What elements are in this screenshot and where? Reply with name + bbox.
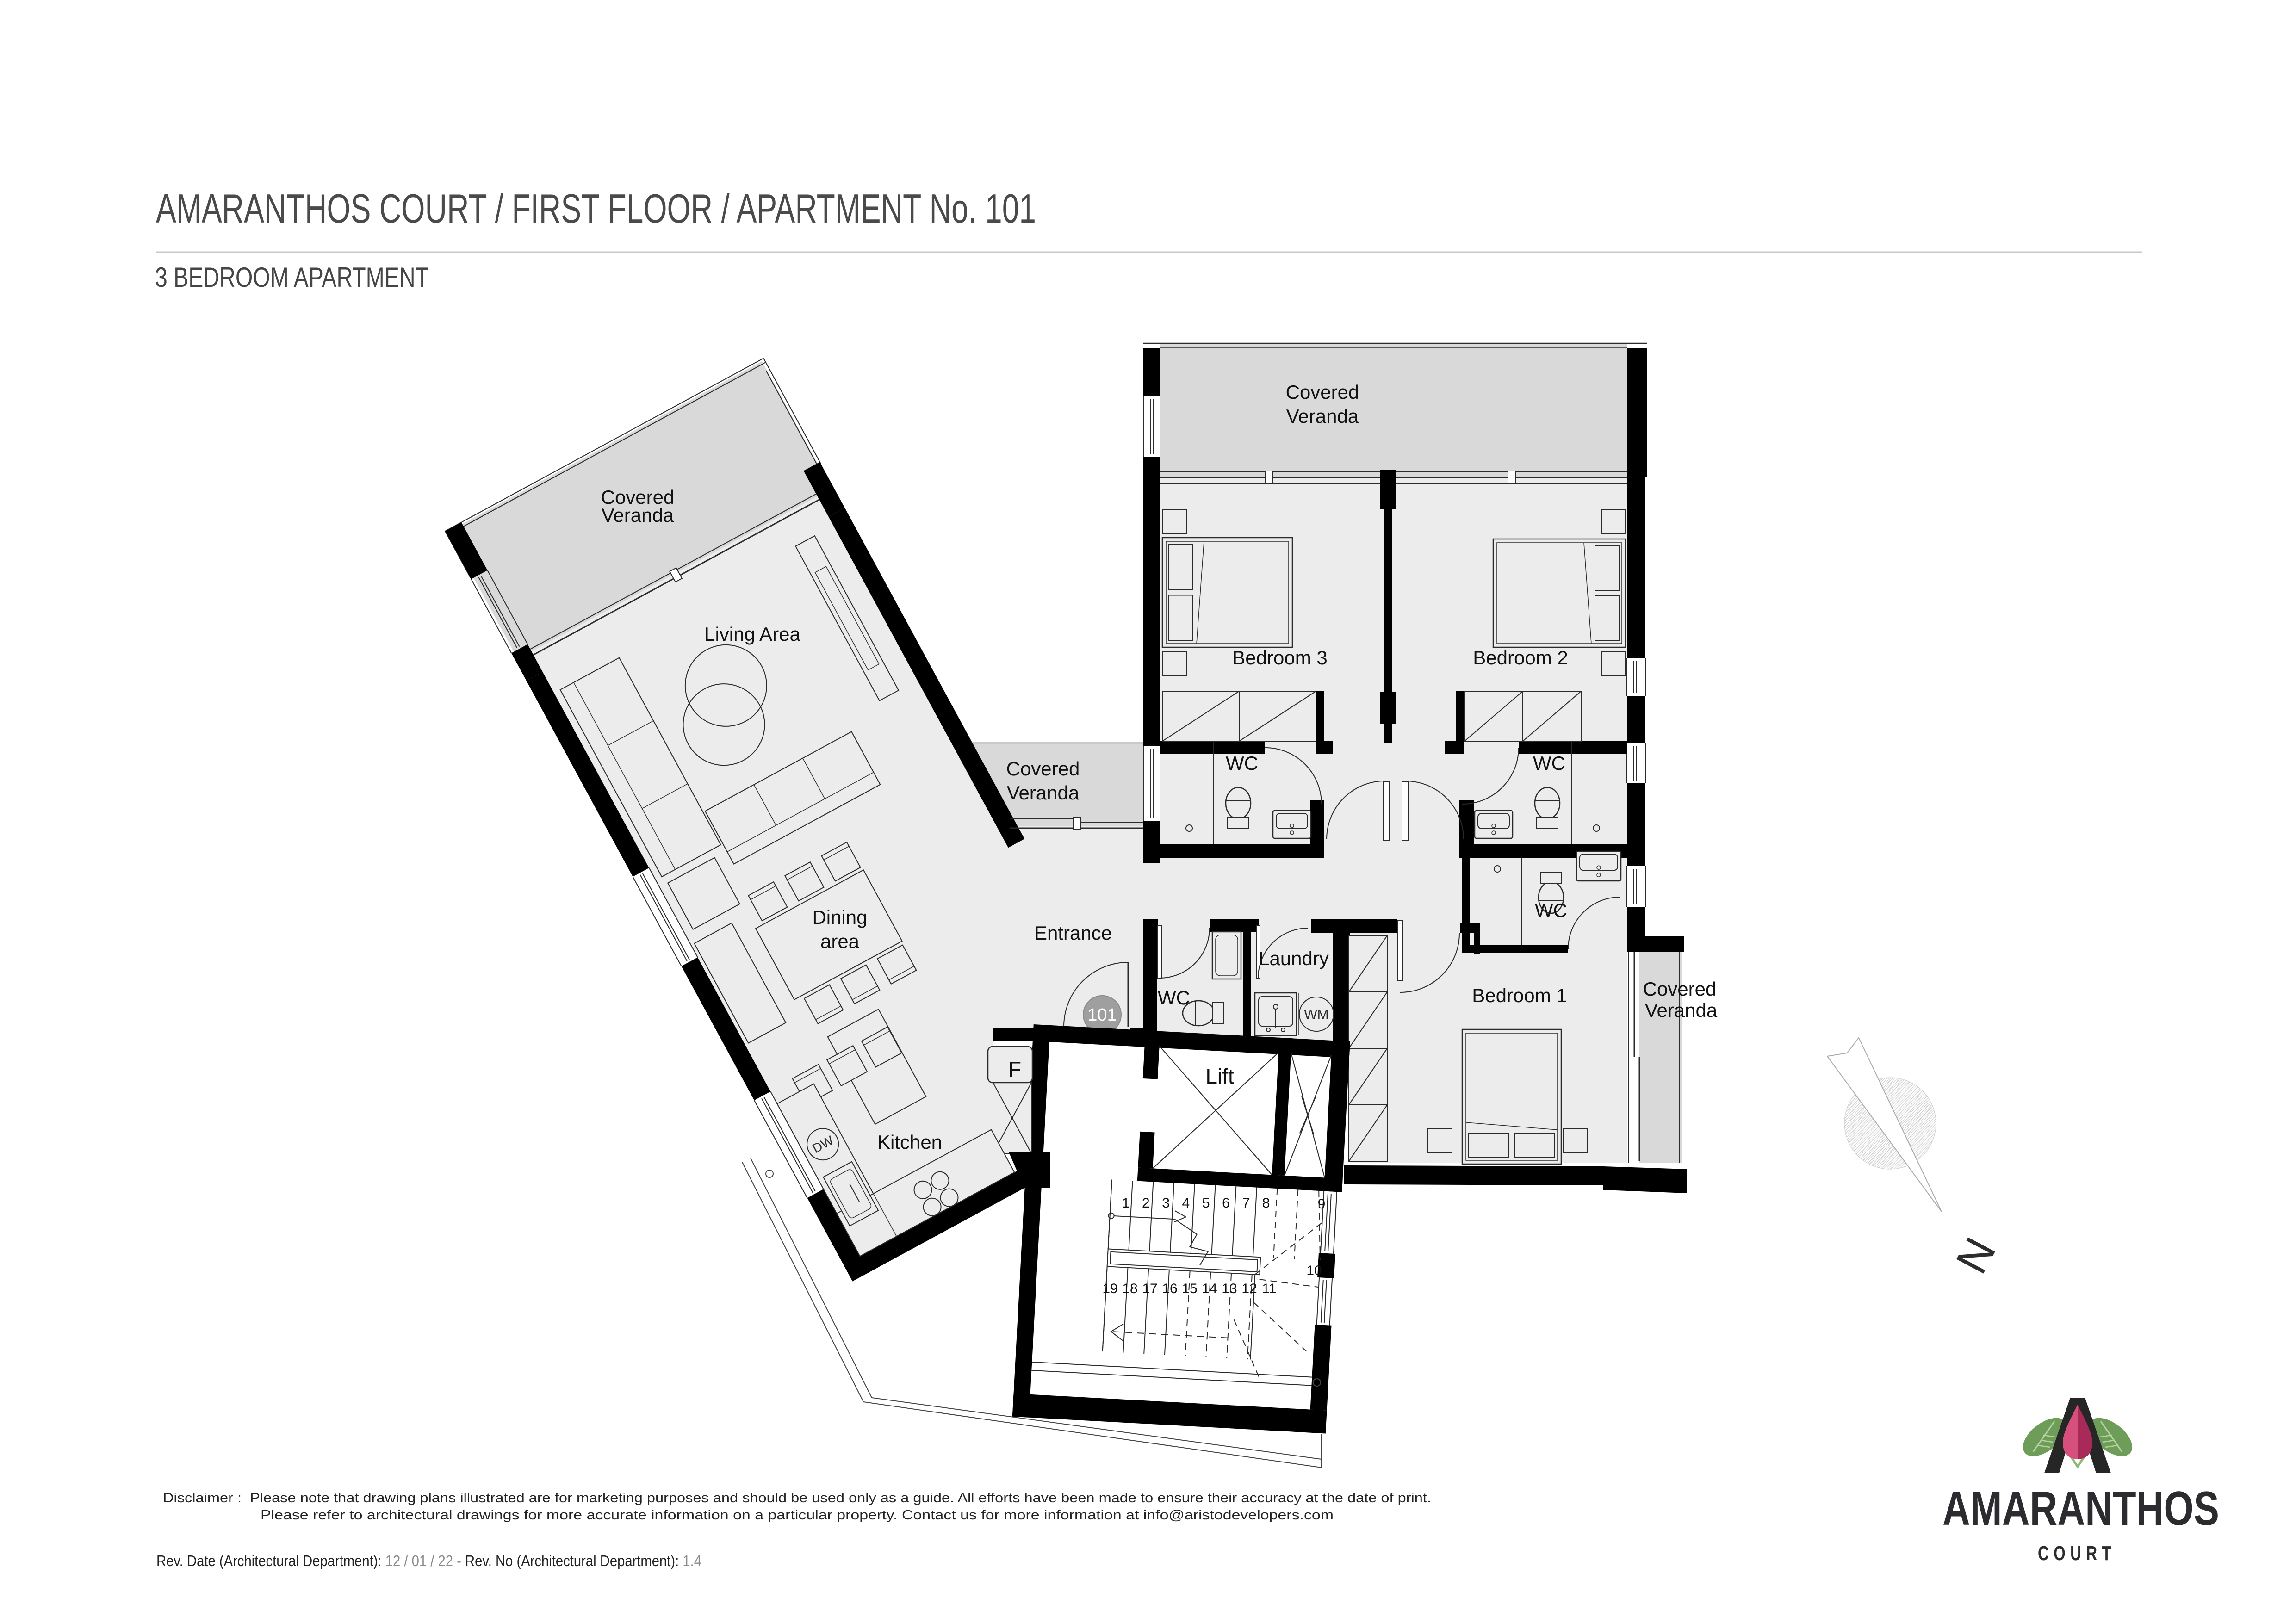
svg-text:7: 7 xyxy=(1242,1196,1250,1211)
svg-text:13: 13 xyxy=(1222,1281,1237,1296)
svg-text:area: area xyxy=(820,930,860,952)
svg-text:Entrance: Entrance xyxy=(1034,922,1112,944)
svg-text:16: 16 xyxy=(1162,1281,1177,1296)
svg-text:WM: WM xyxy=(1304,1007,1328,1022)
svg-text:Covered: Covered xyxy=(1006,758,1080,780)
svg-text:Dining: Dining xyxy=(812,906,867,928)
svg-text:8: 8 xyxy=(1262,1196,1270,1211)
svg-text:Bedroom 1: Bedroom 1 xyxy=(1472,985,1567,1006)
svg-text:Please refer to architectural: Please refer to architectural drawings f… xyxy=(261,1508,1334,1523)
svg-text:5: 5 xyxy=(1202,1196,1210,1211)
svg-text:Rev. Date (Architectural Depar: Rev. Date (Architectural Department): 12… xyxy=(156,1552,701,1569)
svg-text:19: 19 xyxy=(1102,1281,1117,1296)
svg-text:3 BEDROOM APARTMENT: 3 BEDROOM APARTMENT xyxy=(155,262,429,293)
svg-text:WC: WC xyxy=(1535,899,1567,921)
svg-text:Living Area: Living Area xyxy=(704,623,800,645)
svg-text:4: 4 xyxy=(1182,1196,1190,1211)
svg-text:12: 12 xyxy=(1241,1281,1257,1296)
svg-text:101: 101 xyxy=(1087,1005,1117,1025)
svg-text:AMARANTHOS: AMARANTHOS xyxy=(1942,1482,2219,1536)
svg-text:2: 2 xyxy=(1142,1196,1150,1211)
svg-text:Lift: Lift xyxy=(1205,1064,1234,1088)
svg-text:15: 15 xyxy=(1182,1281,1197,1296)
svg-text:9: 9 xyxy=(1318,1196,1326,1212)
svg-text:Kitchen: Kitchen xyxy=(877,1131,942,1153)
svg-text:N: N xyxy=(1947,1230,2005,1281)
svg-text:3: 3 xyxy=(1162,1196,1170,1211)
svg-text:17: 17 xyxy=(1142,1281,1157,1296)
svg-text:10: 10 xyxy=(1306,1263,1322,1278)
svg-text:Laundry: Laundry xyxy=(1259,948,1329,969)
svg-text:Veranda: Veranda xyxy=(602,504,674,526)
svg-text:Veranda: Veranda xyxy=(1007,782,1080,804)
svg-text:Bedroom 3: Bedroom 3 xyxy=(1232,647,1327,669)
svg-text:Covered: Covered xyxy=(1286,381,1359,403)
svg-text:AMARANTHOS COURT / FIRST FLOOR: AMARANTHOS COURT / FIRST FLOOR / APARTME… xyxy=(156,186,1036,231)
svg-text:Disclaimer : Please note that: Disclaimer : Please note that drawing pl… xyxy=(163,1491,1431,1505)
svg-text:COURT: COURT xyxy=(2038,1542,2116,1565)
svg-text:WC: WC xyxy=(1533,752,1565,774)
svg-text:Veranda: Veranda xyxy=(1286,405,1359,427)
svg-text:Covered: Covered xyxy=(1643,978,1717,1000)
svg-text:18: 18 xyxy=(1122,1281,1137,1296)
svg-text:Bedroom 2: Bedroom 2 xyxy=(1473,647,1568,669)
svg-text:WC: WC xyxy=(1226,752,1258,774)
svg-text:14: 14 xyxy=(1202,1281,1217,1296)
svg-text:Veranda: Veranda xyxy=(1645,999,1718,1021)
svg-text:1: 1 xyxy=(1122,1196,1130,1211)
svg-text:WC: WC xyxy=(1158,987,1190,1009)
svg-text:6: 6 xyxy=(1222,1196,1230,1211)
svg-text:11: 11 xyxy=(1262,1281,1276,1296)
svg-text:F: F xyxy=(1008,1057,1021,1081)
